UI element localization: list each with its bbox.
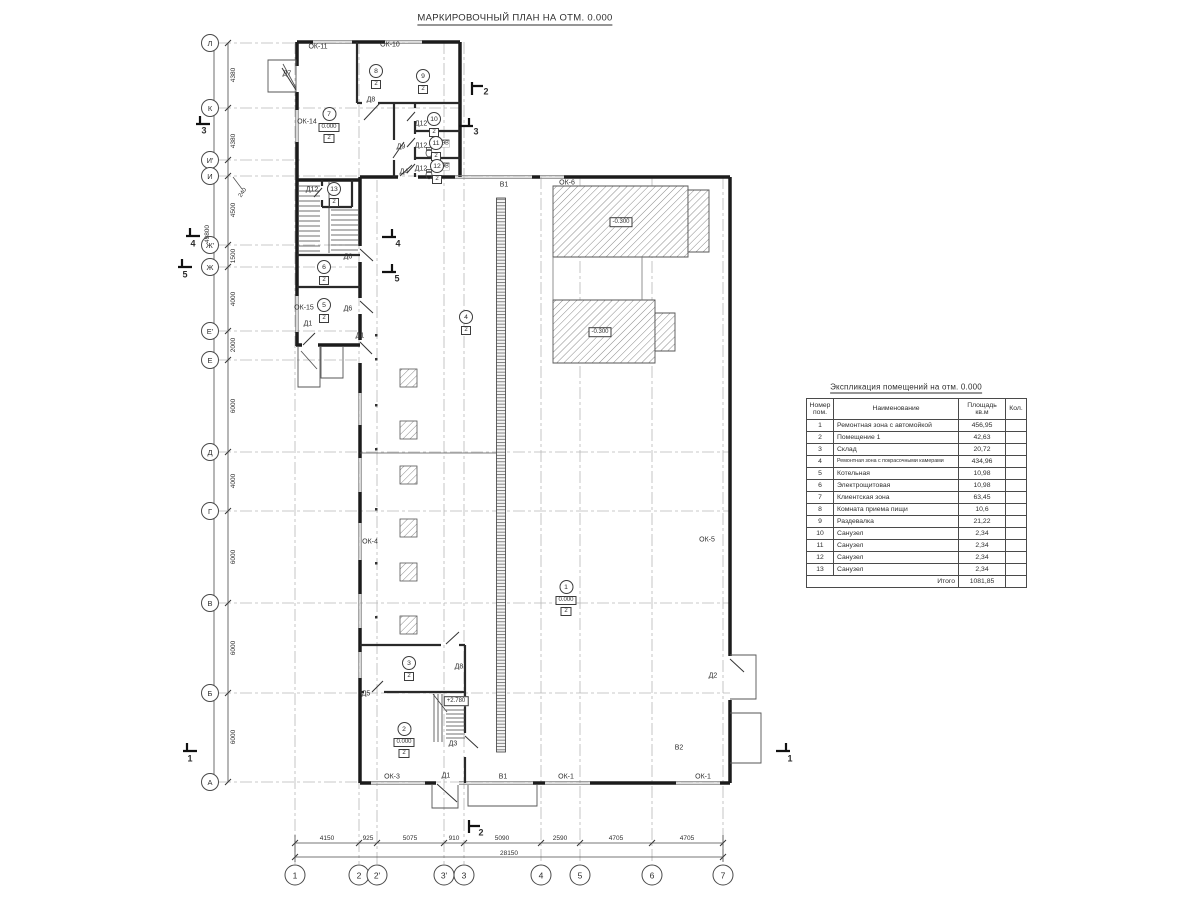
table-cell: Склад [834,444,959,456]
grid-bubble-row: Ж [201,258,219,276]
table-row: 9Раздевалка21,22 [807,516,1027,528]
grid-bubble-row: Б [201,684,219,702]
floor-type-mark: 2 [561,607,571,617]
room-number: 1 [559,580,573,594]
room-number: 8 [369,64,383,78]
section-number: 3 [473,128,478,137]
section-number: 2 [483,88,488,97]
window-label: ОК-4 [362,539,378,546]
room-number: 2 [397,722,411,736]
window-label: ОК-15 [294,305,314,312]
room-elevation: 0.000 [318,123,339,133]
door-label: Д1 [356,333,365,340]
table-cell: Санузел [834,552,959,564]
elevation-mark: +2.780 [444,696,469,706]
room-marker: 20.0002 [393,722,414,758]
table-cell [1006,516,1027,528]
table-cell: Комната приема пищи [834,504,959,516]
grid-bubble-row: Е [201,351,219,369]
dimension-v: 2000 [231,338,238,352]
table-cell: 11 [807,540,834,552]
window-label: ОК-1 [558,774,574,781]
table-cell: 7 [807,492,834,504]
dimension-v: 4380 [231,68,238,82]
elevation-mark: -0.300 [609,217,632,227]
explication-table: Номерпом.НаименованиеПлощадькв.мКол.1Рем… [806,398,1027,588]
room-marker: 10.0002 [555,580,576,616]
door-label: Д1 [442,773,451,780]
floor-type-mark: 2 [319,276,329,286]
table-cell [1006,456,1027,468]
dimension-v: 1500 [231,249,238,263]
dimension-h: 4705 [609,836,623,843]
dimension-v: 4380 [231,134,238,148]
dimension-h: 2590 [553,836,567,843]
grid-bubble-col: 5 [570,865,591,886]
floor-type-mark: 2 [399,749,409,759]
window-label: ОК-3 [384,774,400,781]
table-cell: 2,34 [959,564,1006,576]
grid-bubble-col: 3' [434,865,455,886]
table-cell: Клиентская зона [834,492,959,504]
door-label: Д9 [397,144,406,151]
table-row: 7Клиентская зона63,45 [807,492,1027,504]
table-cell: 1 [807,420,834,432]
table-cell: Итого [807,576,959,588]
table-cell [1006,576,1027,588]
room-marker: 70.0002 [318,107,339,143]
table-header: Кол. [1006,399,1027,420]
section-number: 4 [395,240,400,249]
room-number: 5 [317,298,331,312]
table-header: Площадькв.м [959,399,1006,420]
table-cell: 20,72 [959,444,1006,456]
explication-table-grid: Номерпом.НаименованиеПлощадькв.мКол.1Рем… [806,398,1027,588]
table-cell: 12 [807,552,834,564]
door-label: Д6 [344,254,353,261]
table-cell: 42,63 [959,432,1006,444]
dimension-h: 5075 [403,836,417,843]
room-marker: 82 [369,64,383,89]
door-label: Д3 [449,741,458,748]
grid-bubble-row: Г [201,502,219,520]
grid-bubble-col: 3 [454,865,475,886]
table-cell: 13 [807,564,834,576]
section-number: 1 [187,755,192,764]
room-number: 12 [430,159,444,173]
table-cell: Электрощитовая [834,480,959,492]
floor-type-mark: 2 [432,175,442,185]
table-cell: 3 [807,444,834,456]
floor-type-mark: 2 [418,85,428,95]
table-cell [1006,480,1027,492]
table-cell [1006,552,1027,564]
table-cell: Санузел [834,564,959,576]
grid-bubble-row: Л [201,34,219,52]
table-cell [1006,564,1027,576]
gate-label: В1 [499,774,508,781]
grid-bubble-col: 7 [713,865,734,886]
dimension-v: 4000 [231,292,238,306]
table-cell [1006,504,1027,516]
gate-label: В2 [675,745,684,752]
table-cell [1006,432,1027,444]
door-label: Д7 [283,71,292,78]
door-label: Д8 [455,664,464,671]
floor-type-mark: 2 [371,80,381,90]
section-number: 4 [190,240,195,249]
table-cell: 434,96 [959,456,1006,468]
window-label: ОК-10 [380,42,400,49]
drawing-title: МАРКИРОВОЧНЫЙ ПЛАН НА ОТМ. 0.000 [417,13,612,26]
window-label: ОК-14 [297,119,317,126]
table-row: 12Санузел2,34 [807,552,1027,564]
door-label: Д8 [367,97,376,104]
window-label: ОК-1 [695,774,711,781]
room-marker: 122 [430,159,444,184]
table-cell: 456,95 [959,420,1006,432]
grid-bubble-row: Е' [201,322,219,340]
room-marker: 102 [427,112,441,137]
gate-label: В1 [500,182,509,189]
section-number: 5 [182,271,187,280]
table-row: 1Ремонтная зона с автомойкой456,95 [807,420,1027,432]
room-number: 3 [402,656,416,670]
table-row: 2Помещение 142,63 [807,432,1027,444]
door-label: Д12 [415,143,428,150]
dimension-offset: 240 [238,187,249,199]
table-cell: 2 [807,432,834,444]
table-cell: 2,34 [959,540,1006,552]
table-cell: 5 [807,468,834,480]
explication-table-title: Экспликация помещений на отм. 0.000 [830,383,982,394]
table-cell [1006,528,1027,540]
dimension-v: 6000 [231,550,238,564]
window-label: ОК-6 [559,180,575,187]
table-cell: 2,34 [959,528,1006,540]
room-marker: 62 [317,260,331,285]
table-cell [1006,492,1027,504]
table-row: 11Санузел2,34 [807,540,1027,552]
section-number: 1 [787,755,792,764]
room-marker: 92 [416,69,430,94]
table-cell: 10,6 [959,504,1006,516]
table-row: 10Санузел2,34 [807,528,1027,540]
room-number: 11 [429,136,443,150]
dimension-total-h: 28150 [500,851,518,858]
dimension-v: 6000 [231,641,238,655]
floor-type-mark: 2 [324,134,334,144]
grid-bubble-row: И [201,167,219,185]
grid-bubble-col: 6 [642,865,663,886]
elevation-mark: -0.300 [588,327,611,337]
section-number: 2 [478,829,483,838]
door-label: Д12 [306,187,319,194]
dimension-v: 4000 [231,474,238,488]
room-marker: 32 [402,656,416,681]
door-label: Д6 [344,306,353,313]
table-cell: 10,98 [959,468,1006,480]
table-cell [1006,540,1027,552]
door-label: Д12 [415,166,428,173]
grid-bubble-col: 2' [367,865,388,886]
door-label: Д4 [400,169,409,176]
grid-bubble-col: 4 [531,865,552,886]
dimension-h: 5090 [495,836,509,843]
dimension-h: 925 [363,836,374,843]
table-cell [1006,444,1027,456]
table-total-row: Итого1081,85 [807,576,1027,588]
room-marker: 52 [317,298,331,323]
table-cell: 9 [807,516,834,528]
room-marker: 112 [429,136,443,161]
dimension-total-v: 49800 [205,225,212,243]
table-cell: Раздевалка [834,516,959,528]
table-cell: Санузел [834,528,959,540]
dimension-h: 910 [449,836,460,843]
table-cell: 63,45 [959,492,1006,504]
dimension-v: 4500 [231,203,238,217]
table-cell: Помещение 1 [834,432,959,444]
floor-plan-sheet: МАРКИРОВОЧНЫЙ ПЛАН НА ОТМ. 0.000 Эксплик… [0,0,1200,900]
floor-type-mark: 2 [319,314,329,324]
room-elevation: 0.000 [393,738,414,748]
room-number: 13 [327,182,341,196]
room-marker: 42 [459,310,473,335]
table-cell: 21,22 [959,516,1006,528]
table-row: 13Санузел2,34 [807,564,1027,576]
room-elevation: 0.000 [555,596,576,606]
room-number: 7 [322,107,336,121]
door-label: Д1 [304,321,313,328]
table-cell: Санузел [834,540,959,552]
section-number: 3 [201,127,206,136]
room-number: 4 [459,310,473,324]
room-marker: 132 [327,182,341,207]
table-row: 8Комната приема пищи10,6 [807,504,1027,516]
table-header: Номерпом. [807,399,834,420]
window-label: ОК-5 [699,537,715,544]
table-row: 6Электрощитовая10,98 [807,480,1027,492]
table-cell: 10,98 [959,480,1006,492]
window-label: ОК-11 [308,44,327,51]
table-header: Наименование [834,399,959,420]
door-label: Д5 [362,691,371,698]
grid-bubble-row: А [201,773,219,791]
room-number: 6 [317,260,331,274]
table-row: 4Ремонтная зона с покрасочными камерами4… [807,456,1027,468]
table-cell: 4 [807,456,834,468]
table-cell: 1081,85 [959,576,1006,588]
table-row: 3Склад20,72 [807,444,1027,456]
floor-type-mark: 2 [329,198,339,208]
grid-bubble-row: В [201,594,219,612]
grid-bubble-row: Д [201,443,219,461]
dimension-h: 4150 [320,836,334,843]
table-row: 5Котельная10,98 [807,468,1027,480]
table-cell: Ремонтная зона с покрасочными камерами [834,456,959,468]
table-cell: Котельная [834,468,959,480]
floor-type-mark: 2 [461,326,471,336]
annotation-overlay: МАРКИРОВОЧНЫЙ ПЛАН НА ОТМ. 0.000 Эксплик… [0,0,1200,900]
room-number: 10 [427,112,441,126]
table-cell: 2,34 [959,552,1006,564]
section-number: 5 [394,275,399,284]
table-cell [1006,420,1027,432]
table-cell: 6 [807,480,834,492]
dimension-v: 6000 [231,730,238,744]
table-cell: 8 [807,504,834,516]
table-cell [1006,468,1027,480]
table-cell: Ремонтная зона с автомойкой [834,420,959,432]
door-label: Д2 [709,673,718,680]
grid-bubble-row: К [201,99,219,117]
dimension-v: 6000 [231,399,238,413]
dimension-h: 4705 [680,836,694,843]
table-cell: 10 [807,528,834,540]
door-label: Д12 [415,121,428,128]
grid-bubble-col: 1 [285,865,306,886]
floor-type-mark: 2 [404,672,414,682]
room-number: 9 [416,69,430,83]
